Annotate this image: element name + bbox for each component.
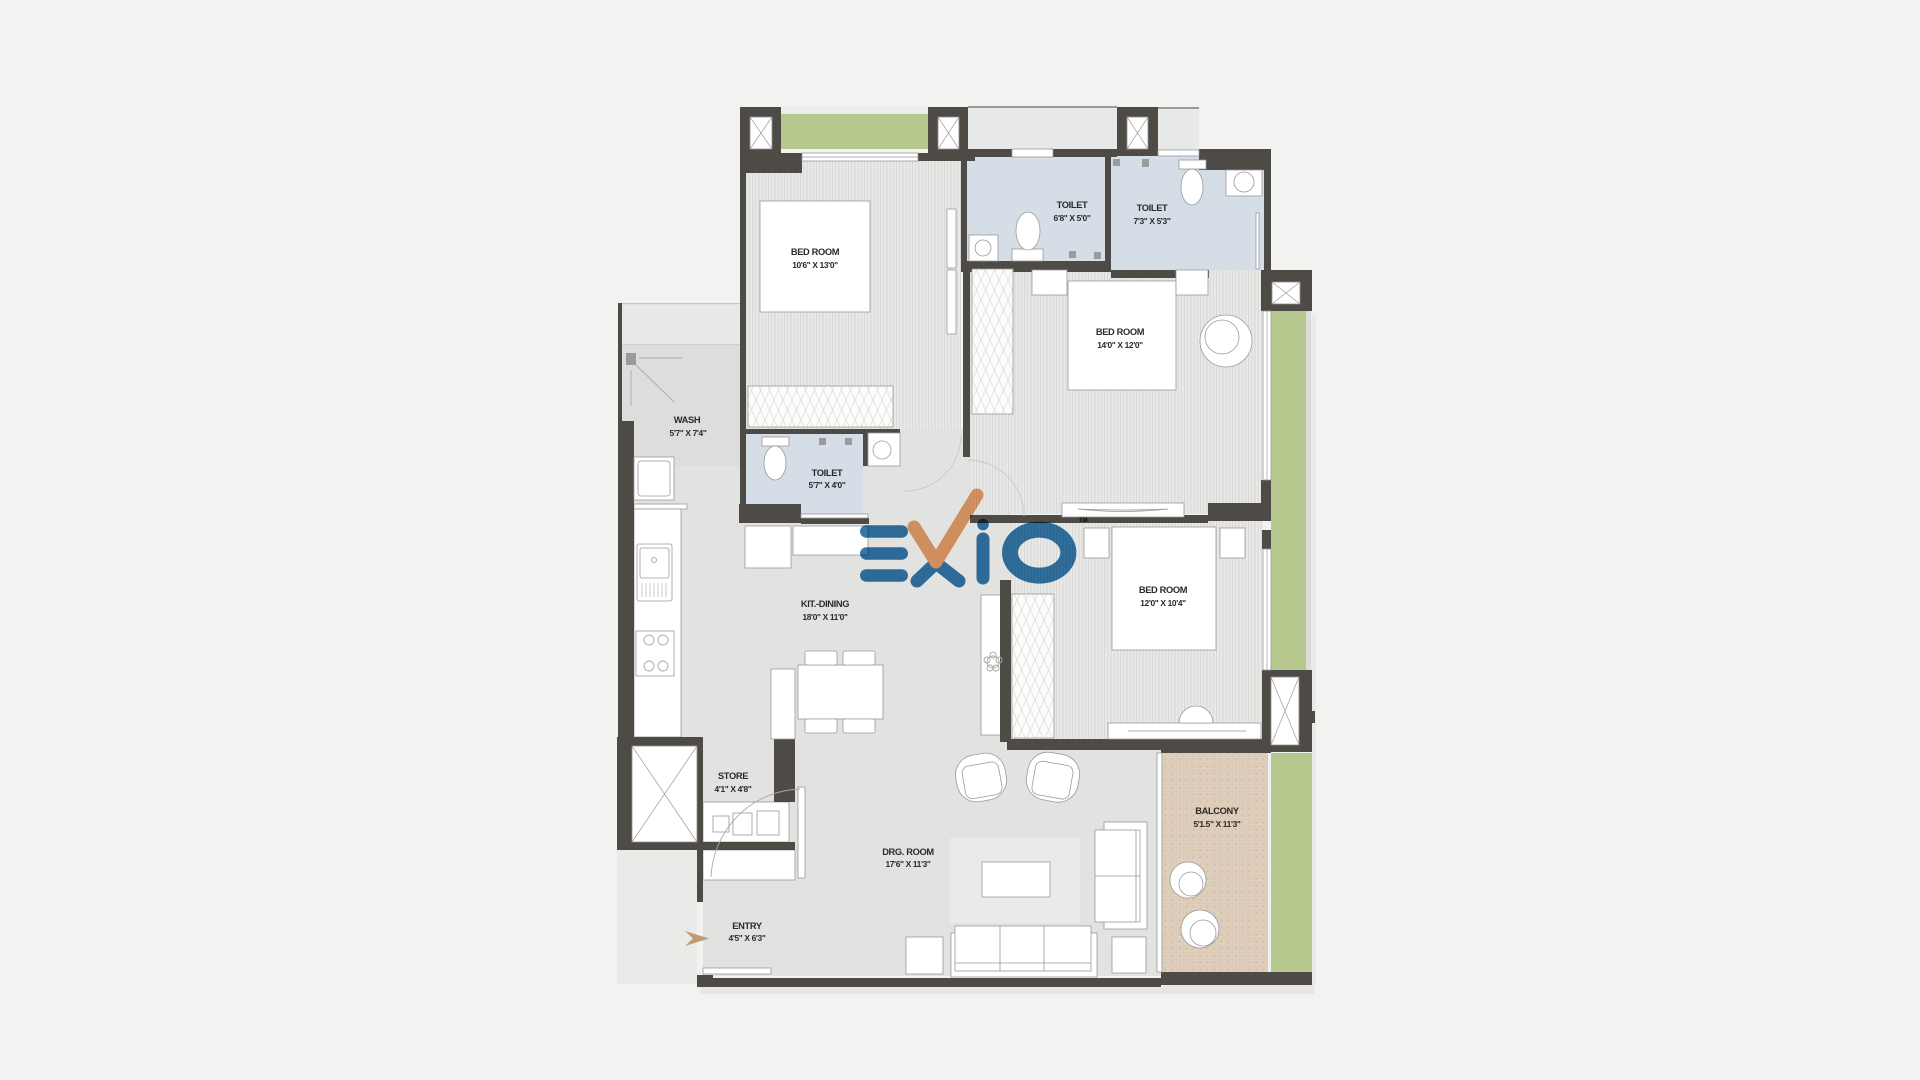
svg-text:STORE: STORE <box>718 771 748 781</box>
svg-text:12'0" X 10'4": 12'0" X 10'4" <box>1140 598 1186 608</box>
svg-text:6'8" X 5'0": 6'8" X 5'0" <box>1054 213 1091 223</box>
svg-text:14'0" X 12'0": 14'0" X 12'0" <box>1097 340 1143 350</box>
svg-text:17'6" X 11'3": 17'6" X 11'3" <box>885 859 930 869</box>
svg-text:4'5" X 6'3": 4'5" X 6'3" <box>729 933 766 943</box>
svg-text:5'1.5" X 11'3": 5'1.5" X 11'3" <box>1193 819 1240 829</box>
svg-text:BED ROOM: BED ROOM <box>1139 585 1188 595</box>
svg-text:4'1" X 4'8": 4'1" X 4'8" <box>715 784 752 794</box>
svg-text:BALCONY: BALCONY <box>1195 806 1240 816</box>
svg-text:7'3" X 5'3": 7'3" X 5'3" <box>1134 216 1171 226</box>
svg-text:10'6" X 13'0": 10'6" X 13'0" <box>792 260 838 270</box>
svg-text:BED ROOM: BED ROOM <box>791 247 840 257</box>
svg-text:TOILET: TOILET <box>812 468 843 478</box>
svg-text:KIT.-DINING: KIT.-DINING <box>801 599 849 609</box>
svg-text:BED ROOM: BED ROOM <box>1096 327 1145 337</box>
svg-text:TOILET: TOILET <box>1137 203 1168 213</box>
svg-text:TM: TM <box>1079 518 1088 524</box>
svg-text:TOILET: TOILET <box>1057 200 1088 210</box>
svg-text:ENTRY: ENTRY <box>732 921 763 931</box>
svg-text:DRG. ROOM: DRG. ROOM <box>882 847 934 857</box>
svg-text:5'7" X 7'4": 5'7" X 7'4" <box>670 428 707 438</box>
svg-text:5'7" X 4'0": 5'7" X 4'0" <box>809 480 846 490</box>
svg-text:18'0" X 11'0": 18'0" X 11'0" <box>802 612 847 622</box>
svg-text:WASH: WASH <box>674 415 701 425</box>
